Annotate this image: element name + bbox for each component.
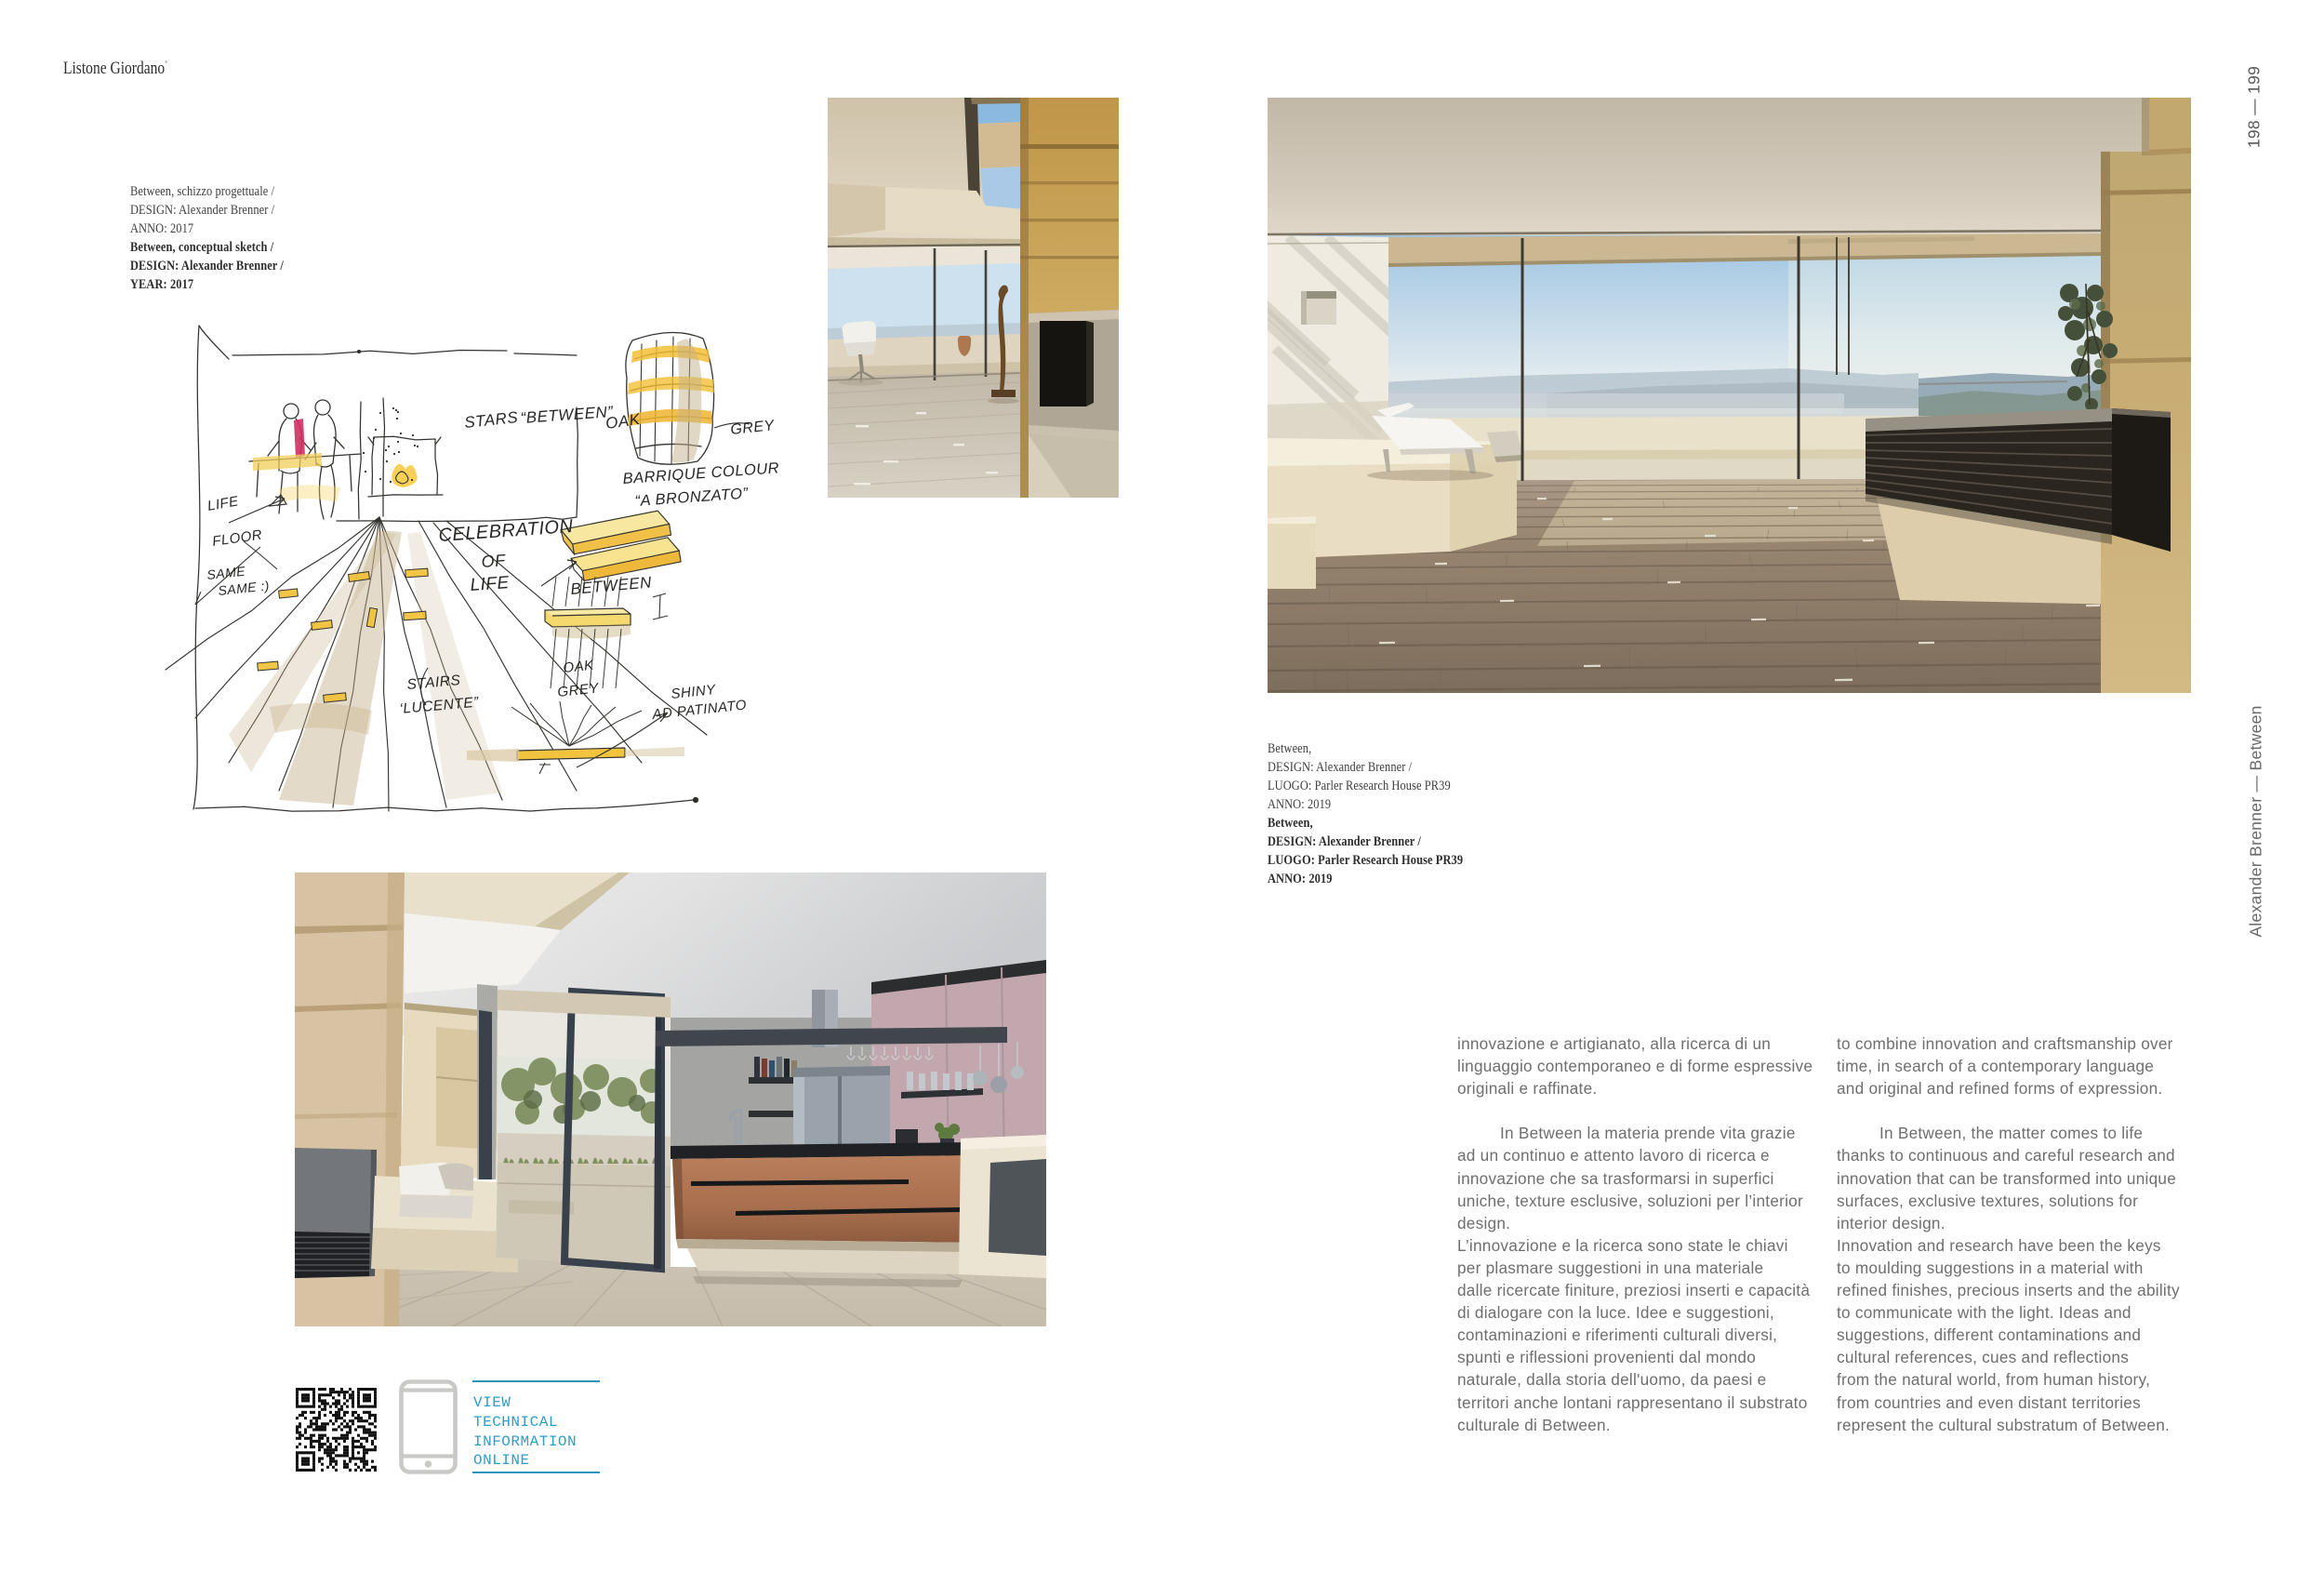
svg-text:“A BRONZATO”: “A BRONZATO” bbox=[634, 485, 750, 510]
svg-text:OF: OF bbox=[481, 551, 507, 571]
svg-text:GREY: GREY bbox=[557, 680, 601, 700]
svg-text:AD PATINATO: AD PATINATO bbox=[651, 697, 748, 723]
svg-text:SHINY: SHINY bbox=[671, 682, 717, 702]
svg-text:BARRIQUE COLOUR: BARRIQUE COLOUR bbox=[622, 460, 780, 487]
svg-text:OAK: OAK bbox=[563, 658, 595, 676]
svg-text:SAME: SAME bbox=[206, 564, 246, 582]
svg-text:“BETWEEN”: “BETWEEN” bbox=[520, 403, 615, 427]
svg-text:OAK: OAK bbox=[604, 410, 642, 433]
svg-text:SAME :): SAME :) bbox=[218, 578, 271, 598]
svg-text:STARS: STARS bbox=[463, 408, 519, 432]
svg-text:LIFE: LIFE bbox=[206, 493, 241, 514]
svg-text:GREY: GREY bbox=[730, 418, 777, 438]
svg-text:LIFE: LIFE bbox=[470, 573, 510, 595]
svg-text:FLOOR: FLOOR bbox=[211, 527, 263, 550]
